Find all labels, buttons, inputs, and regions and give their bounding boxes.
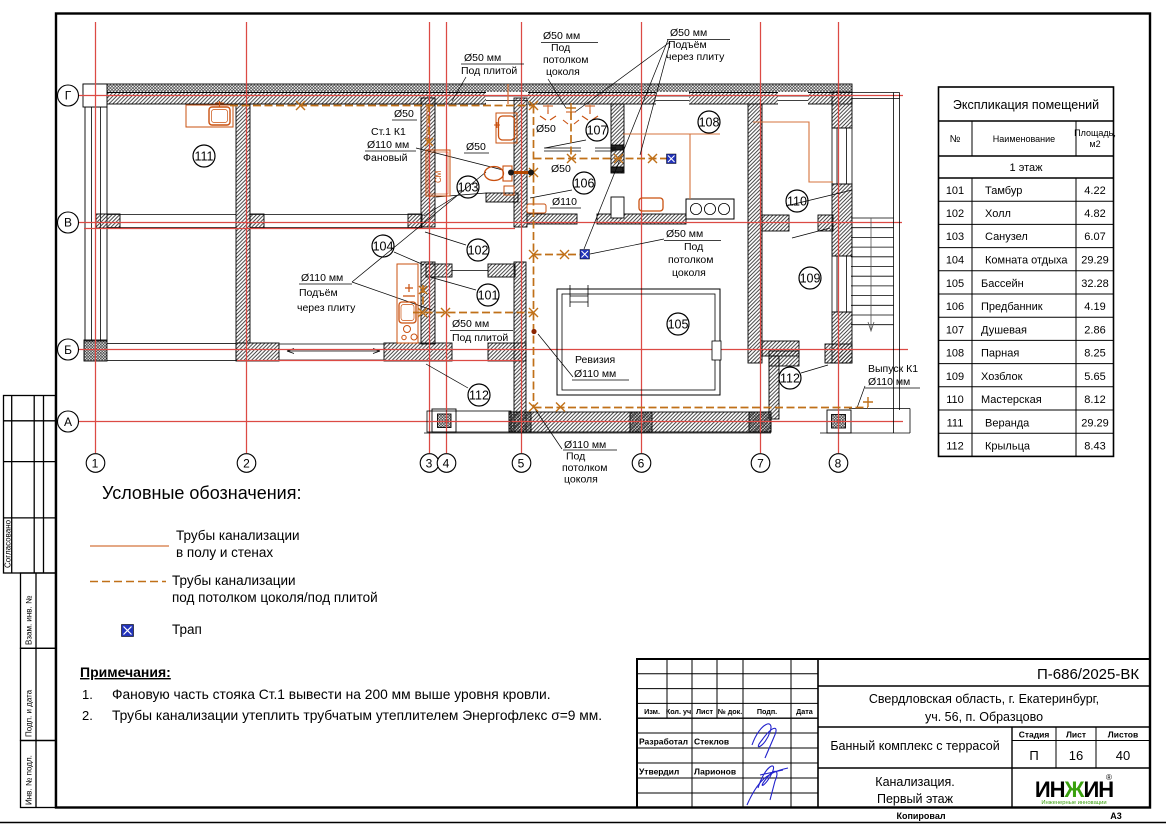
svg-text:16: 16 bbox=[1069, 748, 1083, 763]
svg-text:102: 102 bbox=[468, 244, 489, 258]
svg-text:№: № bbox=[950, 134, 961, 145]
svg-text:109: 109 bbox=[800, 272, 821, 286]
svg-text:Инв. № подл.: Инв. № подл. bbox=[25, 755, 34, 805]
svg-text:Ø110 мм: Ø110 мм bbox=[564, 439, 606, 451]
svg-text:Ø50: Ø50 bbox=[536, 123, 556, 135]
svg-text:Холл: Холл bbox=[985, 208, 1011, 220]
svg-text:ИНЖИН: ИНЖИН bbox=[1035, 777, 1113, 802]
svg-text:Ревизия: Ревизия bbox=[575, 354, 615, 366]
svg-text:2.86: 2.86 bbox=[1084, 324, 1105, 336]
svg-text:Ø110 мм: Ø110 мм bbox=[868, 376, 910, 388]
svg-text:4.22: 4.22 bbox=[1084, 185, 1105, 197]
svg-text:в полу и стенах: в полу и стенах bbox=[176, 545, 273, 560]
svg-text:Примечания:: Примечания: bbox=[80, 664, 171, 680]
svg-text:уч. 56, п. Образцово: уч. 56, п. Образцово bbox=[925, 710, 1043, 724]
svg-text:102: 102 bbox=[946, 208, 964, 220]
svg-text:Условные обозначения:: Условные обозначения: bbox=[102, 483, 301, 503]
svg-text:Ø110 мм: Ø110 мм bbox=[574, 368, 616, 380]
svg-text:106: 106 bbox=[946, 301, 964, 313]
svg-text:4.82: 4.82 bbox=[1084, 208, 1105, 220]
svg-text:5: 5 bbox=[518, 457, 525, 471]
svg-text:Изм.: Изм. bbox=[644, 707, 660, 716]
svg-text:2: 2 bbox=[243, 457, 250, 471]
svg-text:112: 112 bbox=[946, 441, 964, 453]
svg-text:Ø50: Ø50 bbox=[466, 141, 486, 153]
svg-text:Стеклов: Стеклов bbox=[694, 737, 729, 747]
svg-text:4.19: 4.19 bbox=[1084, 301, 1105, 313]
svg-text:Выпуск К1: Выпуск К1 bbox=[868, 363, 918, 375]
svg-text:103: 103 bbox=[946, 231, 964, 243]
svg-text:Трап: Трап bbox=[172, 622, 202, 637]
svg-text:Лист: Лист bbox=[696, 707, 713, 716]
svg-text:Под плитой: Под плитой bbox=[452, 332, 508, 344]
svg-text:110: 110 bbox=[946, 394, 964, 406]
svg-text:29.29: 29.29 bbox=[1081, 417, 1109, 429]
svg-text:101: 101 bbox=[946, 185, 964, 197]
svg-text:8.43: 8.43 bbox=[1084, 441, 1105, 453]
svg-text:6.07: 6.07 bbox=[1084, 231, 1105, 243]
svg-text:Тамбур: Тамбур bbox=[985, 185, 1022, 197]
svg-text:м2: м2 bbox=[1089, 139, 1100, 149]
svg-text:П: П bbox=[1029, 748, 1038, 763]
svg-text:Под: Под bbox=[551, 42, 570, 54]
svg-text:Лист: Лист bbox=[1066, 730, 1086, 740]
svg-text:потолком: потолком bbox=[562, 462, 608, 474]
svg-text:Подъём: Подъём bbox=[299, 287, 338, 299]
svg-text:Ø50 мм: Ø50 мм bbox=[464, 52, 501, 64]
svg-text:Копировал: Копировал bbox=[896, 811, 945, 821]
svg-text:7: 7 bbox=[757, 457, 764, 471]
svg-text:Ст.1 К1: Ст.1 К1 bbox=[371, 126, 406, 138]
svg-text:Трубы канализации утеплить тру: Трубы канализации утеплить трубчатым уте… bbox=[112, 708, 602, 723]
svg-text:Бассейн: Бассейн bbox=[981, 278, 1024, 290]
svg-text:Ø50: Ø50 bbox=[551, 163, 571, 175]
svg-text:103: 103 bbox=[458, 181, 479, 195]
svg-text:112: 112 bbox=[780, 372, 800, 386]
svg-text:Ø50 мм: Ø50 мм bbox=[670, 27, 707, 39]
svg-text:Ø50: Ø50 bbox=[394, 108, 414, 120]
svg-text:Первый этаж: Первый этаж bbox=[877, 792, 954, 806]
svg-text:через плиту: через плиту bbox=[666, 51, 725, 63]
svg-text:Разработал: Разработал bbox=[639, 737, 688, 747]
svg-text:Стадия: Стадия bbox=[1019, 730, 1050, 740]
svg-text:Ø50 мм: Ø50 мм bbox=[543, 30, 580, 42]
svg-text:СМ: СМ bbox=[434, 170, 443, 183]
svg-text:Подъём: Подъём bbox=[668, 39, 707, 51]
svg-text:109: 109 bbox=[946, 371, 964, 383]
svg-text:Хозблок: Хозблок bbox=[981, 371, 1023, 383]
svg-text:Предбанник: Предбанник bbox=[981, 301, 1043, 313]
svg-text:Фановую часть стояка Ст.1 выве: Фановую часть стояка Ст.1 вывести на 200… bbox=[112, 687, 551, 702]
svg-text:Листов: Листов bbox=[1108, 730, 1138, 740]
svg-text:цоколя: цоколя bbox=[564, 474, 598, 486]
svg-text:29.29: 29.29 bbox=[1081, 255, 1109, 267]
svg-text:Экспликация помещений: Экспликация помещений bbox=[953, 98, 1099, 112]
svg-text:111: 111 bbox=[194, 150, 213, 164]
svg-text:Ø50 мм: Ø50 мм bbox=[452, 318, 489, 330]
svg-text:Под: Под bbox=[566, 451, 585, 463]
svg-text:®: ® bbox=[1106, 773, 1112, 782]
svg-text:потолком: потолком bbox=[543, 54, 589, 66]
svg-text:цоколя: цоколя bbox=[672, 267, 706, 279]
svg-text:Трубы канализации: Трубы канализации bbox=[172, 573, 296, 588]
svg-text:цоколя: цоколя bbox=[546, 66, 580, 78]
svg-text:Банный комплекс с террасой: Банный комплекс с террасой bbox=[830, 739, 999, 753]
svg-text:106: 106 bbox=[574, 177, 595, 191]
svg-text:Ø110 мм: Ø110 мм bbox=[301, 272, 343, 284]
svg-text:Ø110 мм: Ø110 мм bbox=[367, 139, 409, 151]
svg-text:104: 104 bbox=[946, 255, 964, 267]
svg-text:Дата: Дата bbox=[796, 707, 814, 716]
svg-text:под потолком цоколя/под плитой: под потолком цоколя/под плитой bbox=[172, 590, 378, 605]
svg-text:107: 107 bbox=[587, 124, 608, 138]
svg-text:111: 111 bbox=[947, 417, 964, 429]
svg-text:А: А bbox=[64, 415, 72, 429]
svg-text:Мастерская: Мастерская bbox=[981, 394, 1042, 406]
svg-text:40: 40 bbox=[1116, 748, 1130, 763]
svg-text:108: 108 bbox=[699, 116, 720, 130]
svg-text:В: В bbox=[64, 216, 72, 230]
svg-text:Ларионов: Ларионов bbox=[694, 767, 736, 777]
svg-text:112: 112 bbox=[469, 389, 489, 403]
svg-text:32.28: 32.28 bbox=[1081, 278, 1109, 290]
svg-text:1.: 1. bbox=[82, 687, 93, 702]
svg-text:105: 105 bbox=[668, 318, 689, 332]
svg-text:8.25: 8.25 bbox=[1084, 348, 1105, 360]
svg-text:110: 110 bbox=[787, 195, 807, 209]
svg-text:8.12: 8.12 bbox=[1084, 394, 1105, 406]
svg-text:Трубы канализации: Трубы канализации bbox=[176, 528, 300, 543]
svg-text:Веранда: Веранда bbox=[985, 417, 1030, 429]
svg-text:Подп. и дата: Подп. и дата bbox=[25, 689, 34, 737]
svg-text:Инженерные инновации: Инженерные инновации bbox=[1041, 800, 1106, 806]
svg-text:3: 3 bbox=[426, 457, 433, 471]
svg-text:Под: Под bbox=[684, 241, 703, 253]
svg-text:Кол. уч.: Кол. уч. bbox=[666, 707, 693, 716]
svg-text:Взам. инв. №: Взам. инв. № bbox=[25, 595, 34, 645]
svg-text:Ø50 мм: Ø50 мм bbox=[666, 228, 703, 240]
svg-text:Г: Г bbox=[65, 89, 72, 103]
svg-text:Согласовано: Согласовано bbox=[4, 519, 13, 568]
svg-text:Подп.: Подп. bbox=[757, 707, 777, 716]
svg-text:через плиту: через плиту bbox=[297, 302, 356, 314]
svg-text:107: 107 bbox=[946, 324, 964, 336]
svg-text:Канализация.: Канализация. bbox=[875, 775, 954, 789]
svg-text:104: 104 bbox=[373, 240, 394, 254]
svg-text:Комната отдыха: Комната отдыха bbox=[985, 255, 1068, 267]
svg-text:Санузел: Санузел bbox=[985, 231, 1028, 243]
svg-text:Ø110: Ø110 bbox=[552, 196, 577, 208]
svg-text:Фановый: Фановый bbox=[363, 152, 408, 164]
svg-text:П-686/2025-ВК: П-686/2025-ВК bbox=[1037, 666, 1139, 683]
svg-text:Наименование: Наименование bbox=[993, 134, 1055, 144]
svg-text:8: 8 bbox=[835, 457, 842, 471]
svg-text:Парная: Парная bbox=[981, 348, 1019, 360]
svg-text:1: 1 bbox=[92, 457, 99, 471]
svg-text:Свердловская область, г. Екате: Свердловская область, г. Екатеринбург, bbox=[869, 692, 1099, 706]
svg-text:108: 108 bbox=[946, 348, 964, 360]
svg-text:потолком: потолком bbox=[668, 254, 714, 266]
svg-text:Под плитой: Под плитой bbox=[461, 65, 517, 77]
svg-text:Душевая: Душевая bbox=[981, 324, 1027, 336]
svg-text:2.: 2. bbox=[82, 708, 93, 723]
svg-text:Площадь,: Площадь, bbox=[1074, 128, 1116, 138]
svg-text:101: 101 bbox=[478, 289, 499, 303]
svg-text:1 этаж: 1 этаж bbox=[1010, 162, 1044, 174]
svg-text:5.65: 5.65 bbox=[1084, 371, 1105, 383]
svg-text:№ док.: № док. bbox=[718, 707, 743, 716]
svg-text:А3: А3 bbox=[1110, 811, 1122, 821]
svg-text:6: 6 bbox=[638, 457, 645, 471]
svg-text:105: 105 bbox=[946, 278, 964, 290]
svg-text:Крыльца: Крыльца bbox=[985, 441, 1031, 453]
svg-text:Утвердил: Утвердил bbox=[639, 767, 679, 777]
svg-text:Б: Б bbox=[64, 343, 72, 357]
svg-text:4: 4 bbox=[443, 457, 450, 471]
